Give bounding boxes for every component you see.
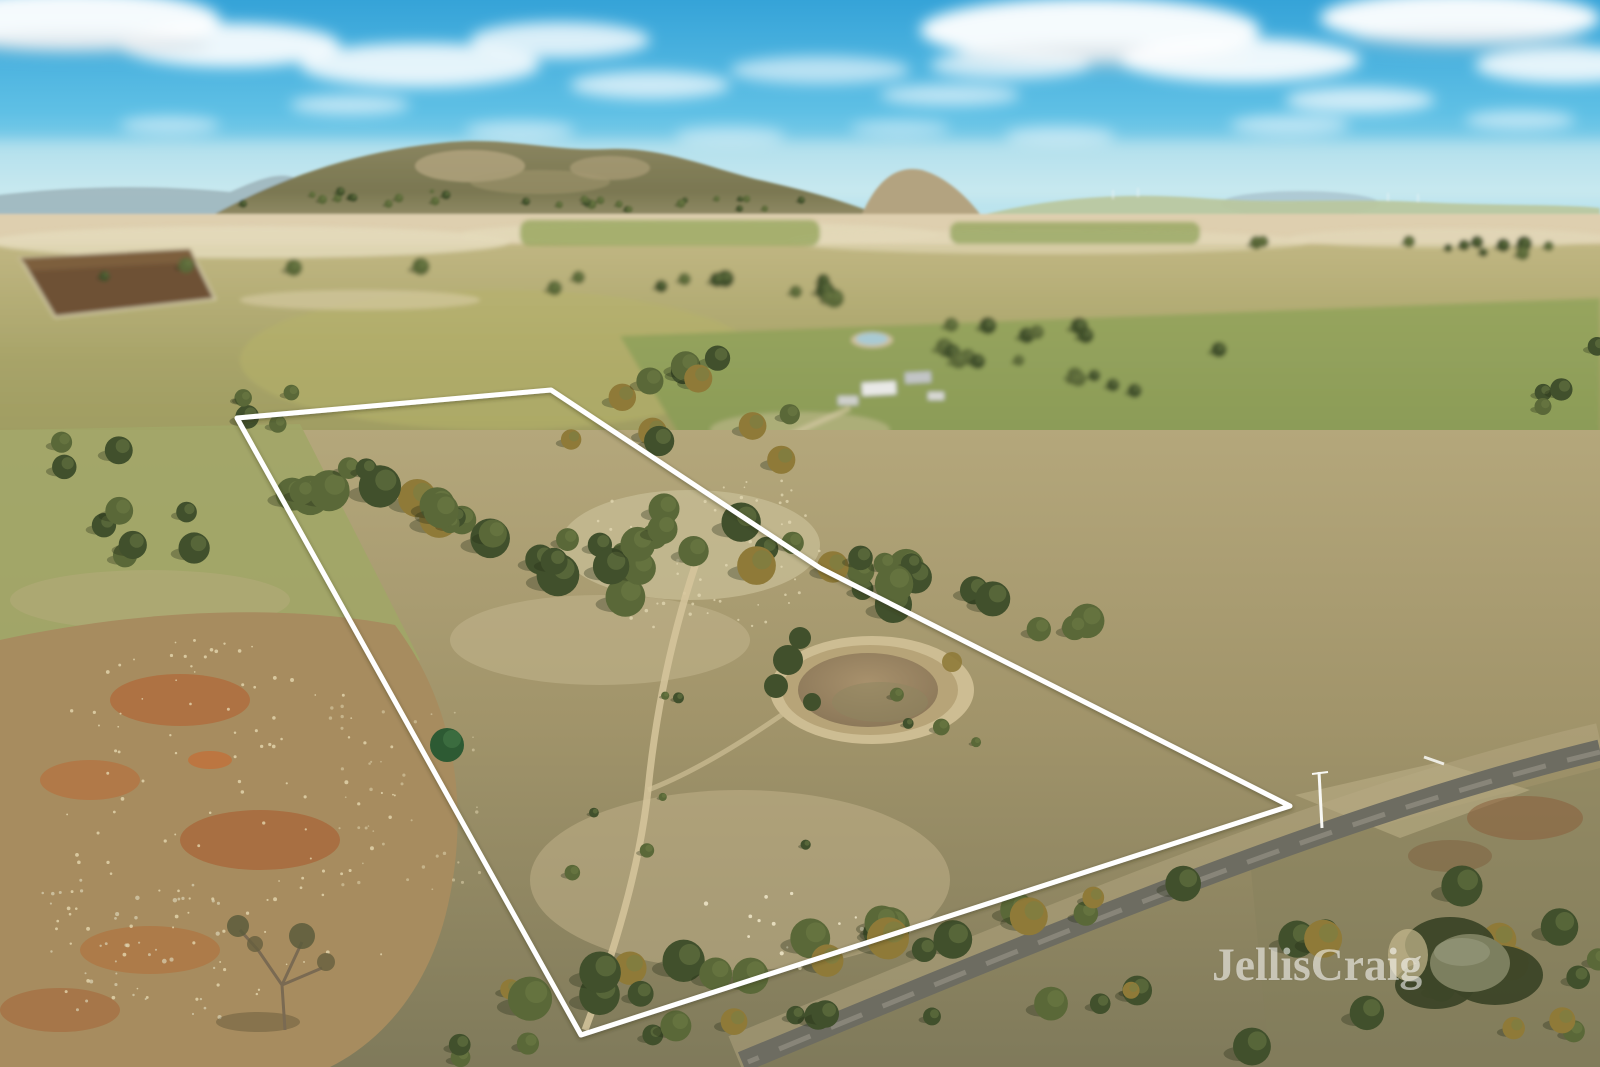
aerial-photo: JellisCraig [0, 0, 1600, 1067]
foreground-paddocks [0, 337, 1600, 1067]
small-dam [856, 333, 888, 345]
landscape-scene [0, 0, 1600, 1067]
